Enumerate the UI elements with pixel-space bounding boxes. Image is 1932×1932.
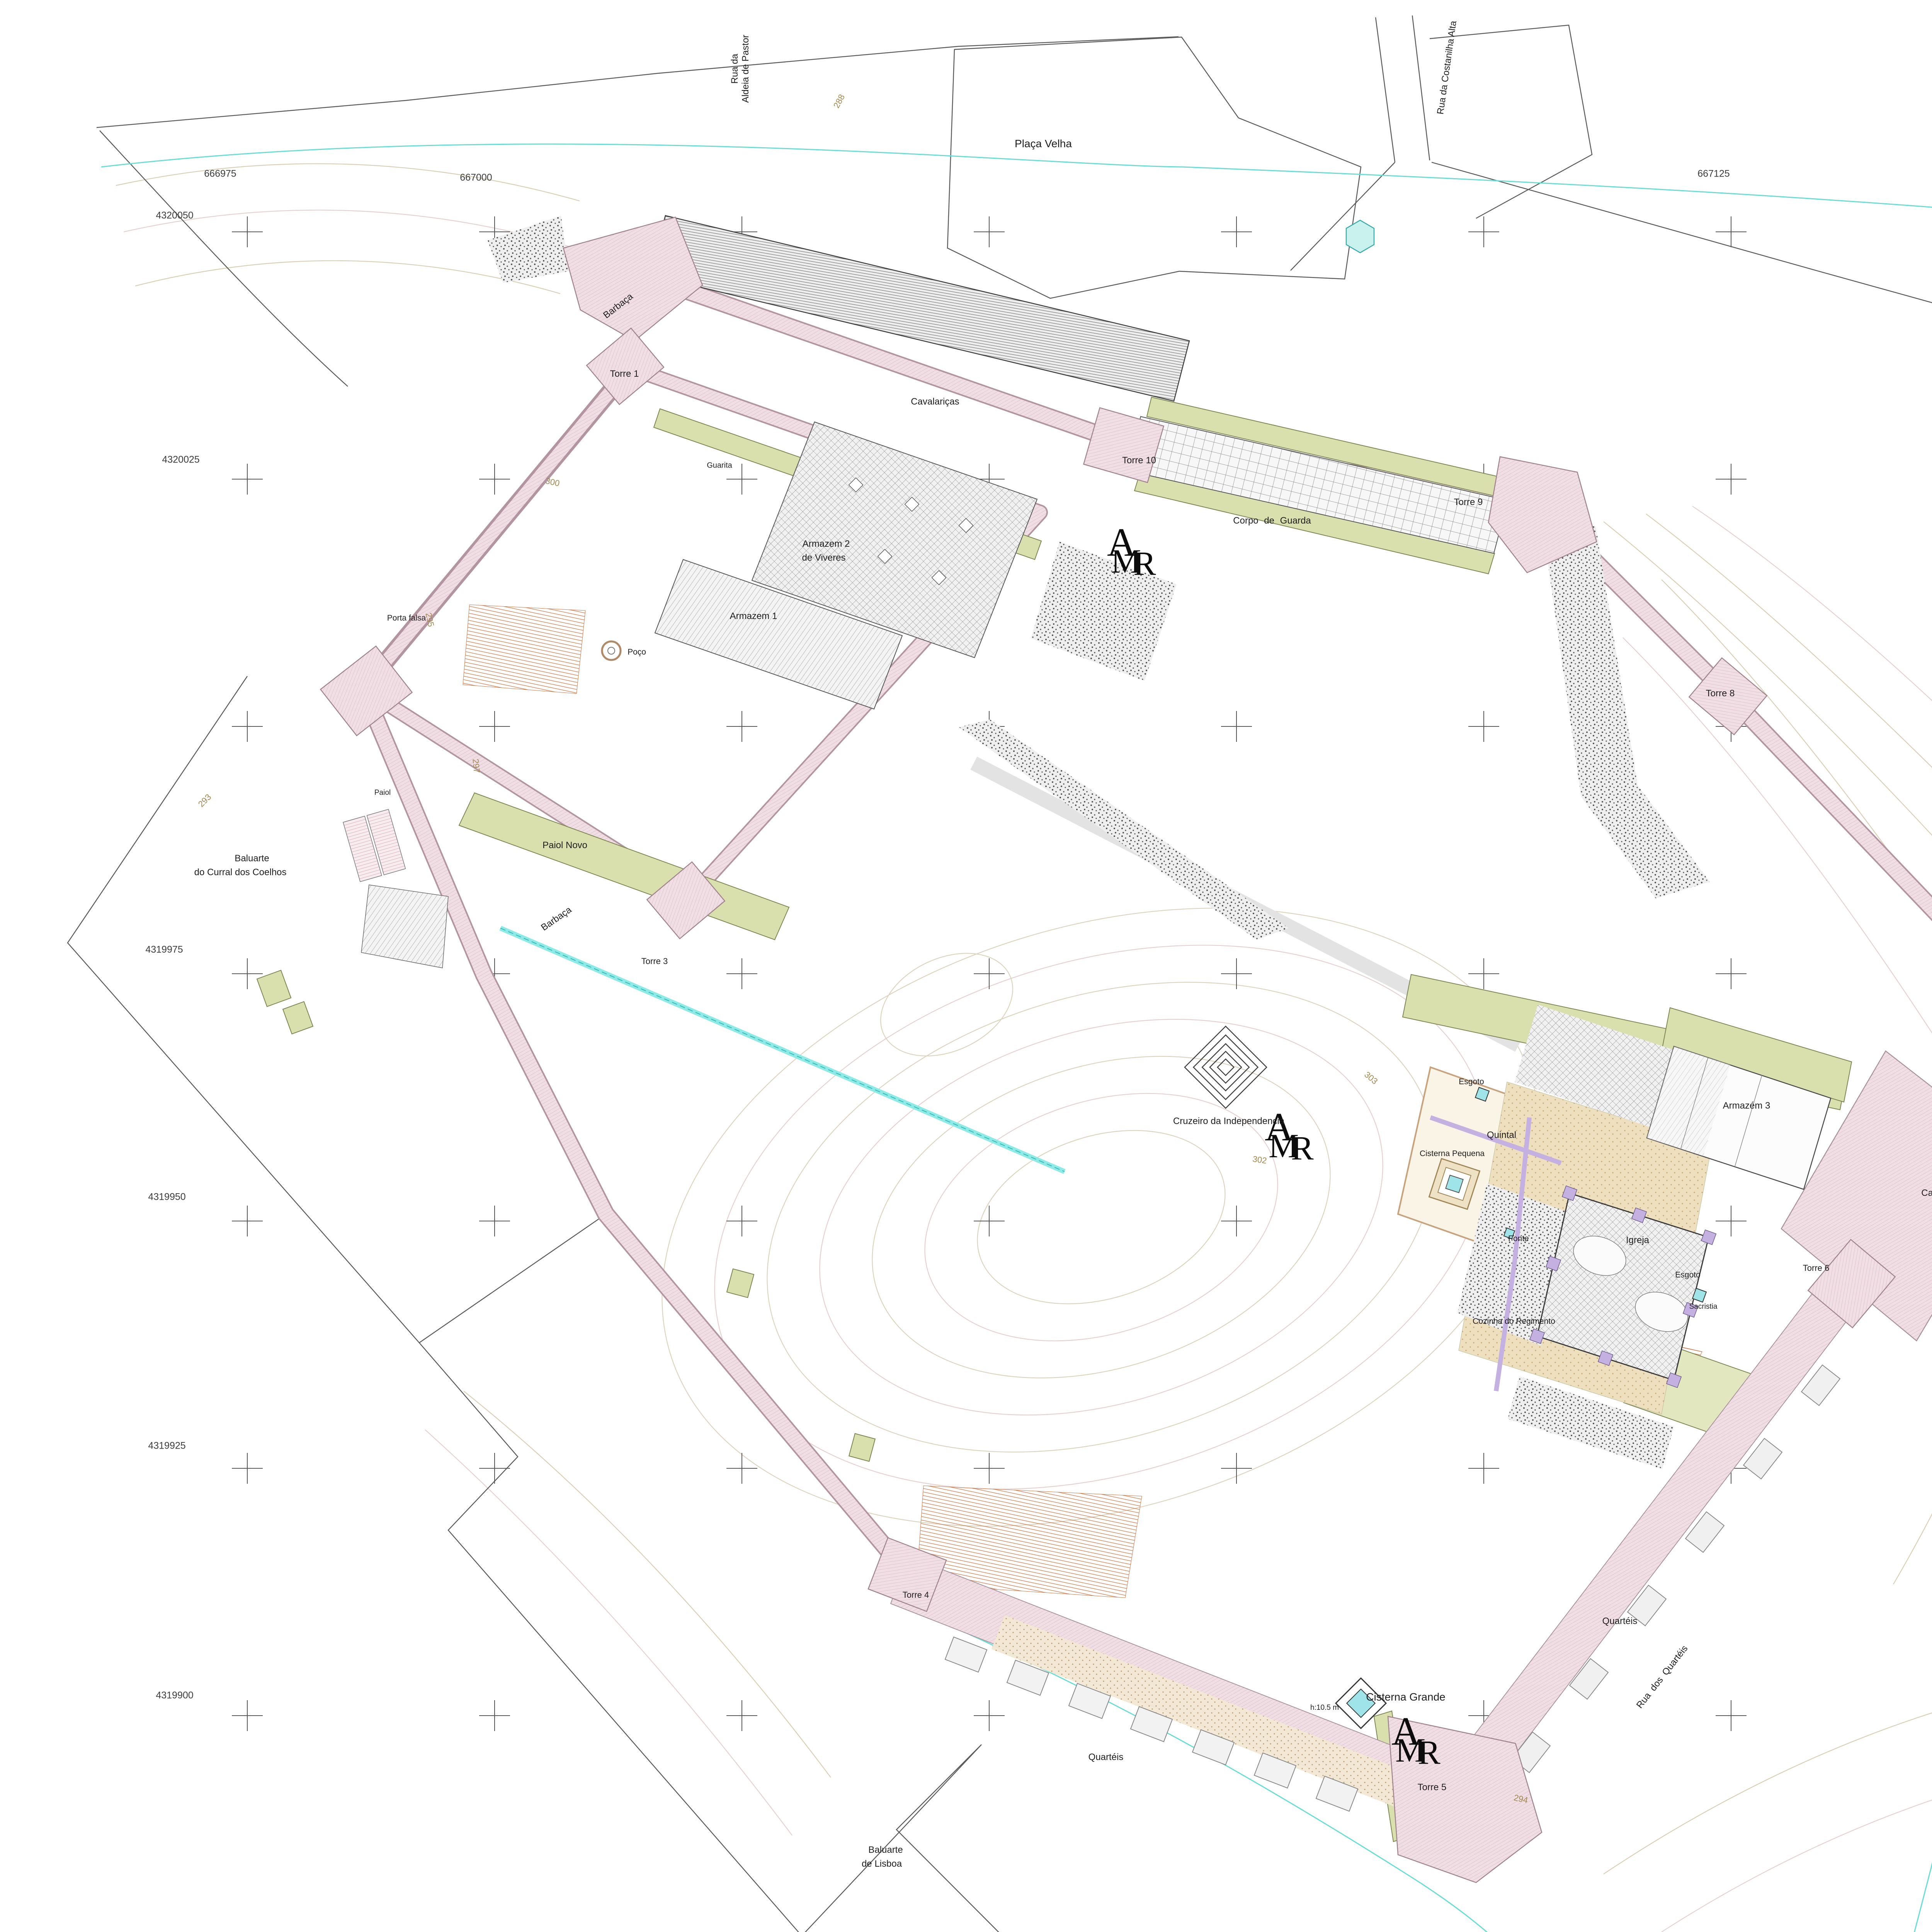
label-armazem-3: Armazém 3	[1723, 1100, 1770, 1111]
label-baluarte-coelhos-2: do Curral dos Coelhos	[194, 867, 287, 878]
label-esgoto-north: Esgoto	[1459, 1077, 1484, 1087]
northing-label: 4320025	[162, 454, 199, 466]
label-torre-1: Torre 1	[610, 369, 639, 379]
label-armazem-2-2: de Viveres	[802, 553, 846, 563]
label-torre-8: Torre 8	[1706, 688, 1735, 699]
northing-label: 4319975	[145, 944, 183, 956]
northing-label: 4320050	[156, 210, 193, 221]
label-torre-4: Torre 4	[903, 1590, 929, 1600]
label-torre-5: Torre 5	[1418, 1782, 1447, 1793]
label-cisterna-depth: h:10.5 m	[1310, 1704, 1339, 1712]
monogram-letter: R	[1291, 1132, 1314, 1166]
label-cisterna-grande: Cisterna Grande	[1366, 1691, 1445, 1703]
northing-label: 4319900	[156, 1690, 193, 1701]
label-cavalaricas-east: Cavalariças	[1921, 1188, 1932, 1199]
label-quarteis-east: Quartéis	[1602, 1616, 1638, 1627]
label-torre-9: Torre 9	[1454, 497, 1483, 508]
contour-label: 302	[1252, 1154, 1267, 1166]
label-cavalaricas-north: Cavalariças	[911, 396, 959, 407]
label-torre-6: Torre 6	[1803, 1263, 1829, 1273]
label-paiol: Paiol	[374, 789, 391, 797]
label-porta-falsa: Porta falsa	[387, 614, 426, 623]
northing-label: 4319950	[148, 1192, 185, 1203]
easting-label: 667000	[460, 172, 492, 184]
label-guarita: Guarita	[707, 461, 732, 470]
label-cruzeiro: Cruzeiro da Independencia	[1173, 1116, 1284, 1127]
monogram-letter: R	[1418, 1736, 1440, 1770]
label-line: Rua da	[730, 35, 740, 103]
easting-label: 666975	[204, 168, 236, 180]
label-armazem-1: Armazem 1	[730, 611, 777, 622]
label-rua-aldeia-pastor: Rua da Aldeia de Pastor	[730, 35, 751, 103]
label-poco: Poço	[628, 648, 646, 657]
label-corpo-de-guarda: Corpo de Guarda	[1233, 515, 1311, 526]
label-paiol-novo: Paiol Novo	[543, 840, 587, 851]
contour-label: 297	[470, 759, 481, 774]
label-baluarte-coelhos-1: Baluarte	[235, 853, 269, 864]
northing-label: 4319925	[148, 1440, 185, 1452]
label-esgoto-south: Esgoto	[1675, 1270, 1700, 1280]
label-armazem-2-1: Armazem 2	[803, 539, 850, 549]
label-fonte: Fonte	[1508, 1234, 1529, 1243]
site-plan-canvas: N	[0, 0, 1932, 1932]
label-cisterna-pequena: Cisterna Pequena	[1420, 1149, 1485, 1158]
label-baluarte-lisboa-1: Baluarte	[868, 1845, 903, 1855]
label-cozinha: Cozinha do Regimento	[1473, 1317, 1555, 1326]
label-baluarte-lisboa-2: de Lisboa	[862, 1859, 902, 1869]
monogram-letter: R	[1133, 547, 1156, 581]
label-quintal: Quintal	[1487, 1130, 1516, 1141]
label-line: Aldeia de Pastor	[740, 35, 751, 103]
label-igreja: Igreja	[1626, 1235, 1649, 1246]
label-sacristia: Sacristia	[1689, 1303, 1718, 1311]
label-torre-10: Torre 10	[1122, 455, 1156, 466]
amr-watermark: A M R	[1391, 1711, 1453, 1781]
amr-watermark: A M R	[1107, 522, 1169, 592]
label-quarteis-south: Quartéis	[1088, 1752, 1124, 1763]
easting-label: 667125	[1697, 168, 1730, 180]
label-torre-3: Torre 3	[641, 956, 668, 966]
label-placa-velha: Plaça Velha	[1015, 138, 1072, 150]
